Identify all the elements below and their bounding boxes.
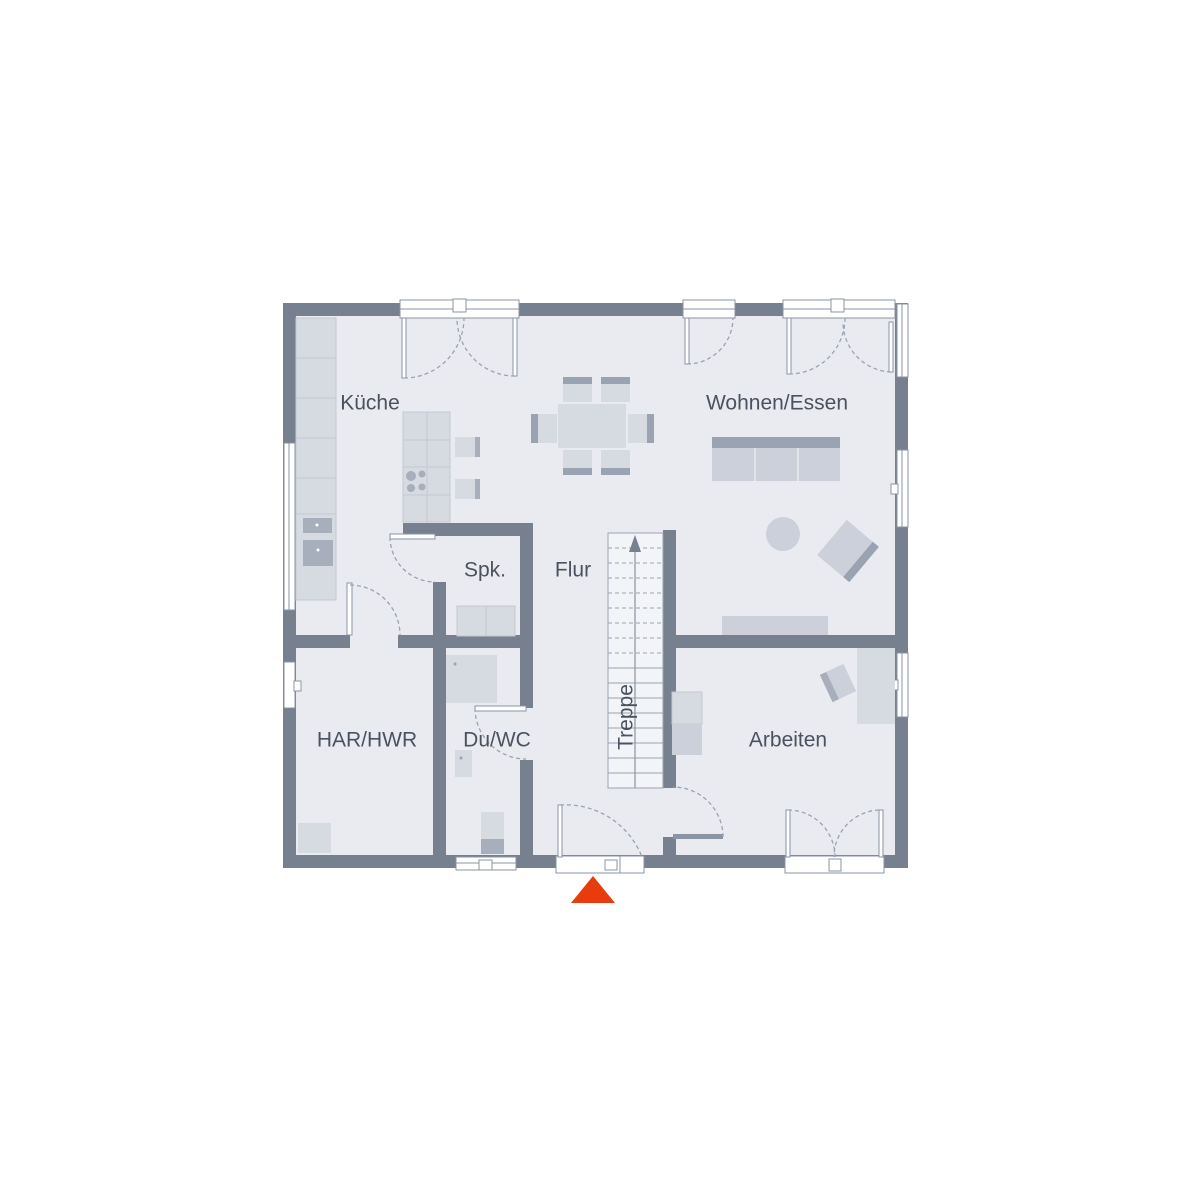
label-spk: Spk.	[464, 559, 506, 582]
label-du-wc: Du/WC	[463, 729, 531, 752]
door-leaf	[685, 318, 689, 364]
toilet-tank	[481, 839, 504, 854]
entrance-door-leaf	[558, 805, 562, 857]
bar-stool-back	[475, 479, 480, 499]
wall-stub-arbeiten-door	[663, 837, 676, 855]
sink-dot	[316, 524, 319, 527]
door-leaf	[786, 810, 790, 857]
wall-arbeiten-top	[663, 635, 895, 648]
entrance-arrow-icon	[571, 876, 615, 903]
utility-mat	[298, 823, 331, 853]
door-leaf	[513, 318, 517, 376]
sideboard	[722, 616, 828, 635]
door-leaf	[402, 318, 406, 378]
burner	[419, 471, 426, 478]
pantry-furniture	[457, 606, 515, 636]
label-arbeiten: Arbeiten	[749, 729, 827, 752]
exterior-wall-right	[895, 303, 908, 868]
wall-har-duwc-divider	[433, 582, 446, 855]
door-handle-icon	[453, 299, 466, 312]
window-handle-icon	[479, 860, 492, 870]
wall-flur-left-upper	[520, 523, 533, 708]
dining-chair-back	[601, 468, 630, 475]
label-treppe: Treppe	[615, 684, 638, 750]
sofa-seat	[712, 448, 840, 481]
arbeiten-door-leaf	[673, 834, 723, 839]
coffee-table	[766, 517, 800, 551]
kitchen-oven	[303, 540, 333, 566]
desk	[857, 648, 895, 724]
door-handle-icon	[829, 859, 841, 871]
spk-door-leaf	[390, 534, 435, 539]
door-handle-icon	[831, 299, 844, 312]
door-handle-icon	[605, 860, 617, 870]
dining-chair-back	[563, 468, 592, 475]
office-cabinet	[672, 692, 702, 724]
window-handle-icon	[891, 484, 898, 494]
wall-flur-left-lower	[520, 760, 533, 855]
label-har-hwr: HAR/HWR	[317, 729, 417, 752]
washbasin-dot	[460, 757, 463, 760]
burner	[419, 484, 426, 491]
window-handle-icon	[294, 681, 301, 691]
label-kueche: Küche	[340, 392, 400, 415]
shower	[446, 655, 497, 703]
toilet-bowl	[481, 812, 504, 839]
burner	[407, 484, 415, 492]
bar-stool-back	[475, 437, 480, 457]
shower-drain-dot	[454, 663, 457, 666]
dining-chair-back	[563, 377, 592, 384]
dining-chair-back	[601, 377, 630, 384]
wall-har-top-left	[296, 635, 350, 648]
burner	[406, 471, 416, 481]
dining-chair-back	[531, 414, 538, 443]
dining-chair-back	[647, 414, 654, 443]
wall-har-top-right	[398, 635, 533, 648]
entrance-door-frame	[556, 856, 644, 873]
office-cabinet-lower	[672, 724, 702, 755]
window-har-left	[284, 662, 295, 708]
duwc-door-leaf	[475, 706, 526, 711]
door-leaf	[889, 322, 893, 372]
floor-plan-page: Küche Wohnen/Essen Spk. Flur HAR/HWR Du/…	[0, 0, 1200, 1200]
door-leaf	[787, 318, 791, 374]
door-leaf	[879, 810, 883, 857]
oven-dot	[317, 549, 320, 552]
har-door-leaf	[347, 583, 352, 635]
sofa-back	[712, 437, 840, 448]
label-wohnen-essen: Wohnen/Essen	[706, 392, 848, 415]
washbasin	[455, 750, 472, 777]
floor-plan: Küche Wohnen/Essen Spk. Flur HAR/HWR Du/…	[0, 0, 1200, 1200]
label-flur: Flur	[555, 559, 591, 582]
dining-table	[558, 404, 626, 448]
